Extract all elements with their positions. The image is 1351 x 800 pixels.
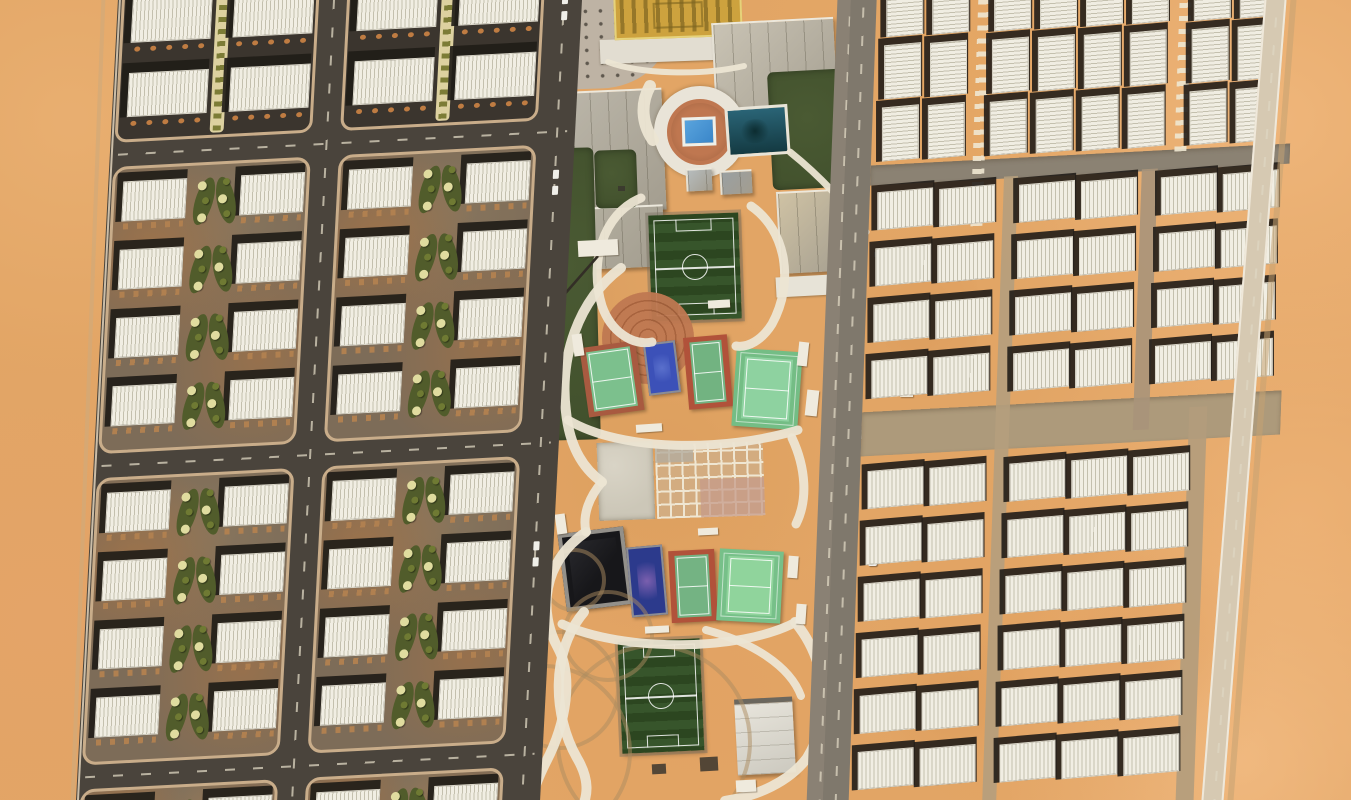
housing-block: [871, 356, 927, 399]
housing-block: [884, 42, 921, 99]
entry-tree: [134, 46, 140, 51]
bench-slab: [787, 556, 799, 579]
entry-tree: [252, 40, 258, 45]
housing-block: [1132, 0, 1169, 24]
housing-block: [1161, 172, 1217, 215]
housing-strip: [432, 783, 498, 800]
housing-strip: [105, 489, 171, 533]
housing-strip: [331, 478, 397, 522]
housing-strip: [343, 235, 409, 279]
housing-block: [922, 688, 978, 731]
tree-dot: [419, 270, 428, 280]
housing-block: [860, 691, 916, 734]
entry-tree: [392, 33, 398, 38]
housing-block: [1129, 565, 1185, 608]
tree-dot: [173, 661, 182, 671]
entry-tree: [296, 112, 302, 117]
housing-block: [935, 296, 991, 339]
entry-tree: [284, 39, 290, 44]
housing-block: [1071, 456, 1127, 499]
housing-strip: [236, 240, 302, 284]
housing-block: [1003, 627, 1059, 670]
housing-strip: [465, 160, 531, 204]
entry-tree: [510, 27, 516, 32]
housing-block: [920, 744, 976, 787]
housing-strip: [111, 383, 177, 427]
housing-block: [858, 747, 914, 790]
entry-tree: [268, 39, 274, 44]
entry-tree: [146, 120, 152, 125]
housing-strip: [219, 551, 285, 595]
housing-strip: [458, 297, 524, 341]
housing-block: [1189, 88, 1226, 145]
housing-block: [1128, 91, 1165, 148]
housing-strip: [320, 682, 386, 726]
entry-tree: [194, 117, 200, 122]
parked-car: [532, 557, 538, 566]
housing-strip: [127, 69, 209, 117]
court-blue-south: [626, 545, 668, 618]
housing-block: [992, 36, 1029, 93]
housing-strip: [461, 228, 527, 272]
housing-block: [886, 0, 923, 37]
entry-tree: [376, 34, 382, 39]
residential-zone-west: [74, 0, 584, 800]
housing-block: [868, 466, 924, 509]
entry-tree: [280, 113, 286, 118]
entry-tree: [424, 31, 430, 36]
housing-block: [930, 40, 967, 97]
courtyard: [182, 376, 227, 436]
gold-detail-2: [653, 1, 704, 29]
field-box-bottom: [646, 734, 679, 747]
housing-block: [1084, 32, 1121, 89]
superblock: [307, 456, 520, 754]
entry-tree: [388, 107, 394, 112]
pool-small: [682, 116, 717, 146]
entry-tree: [526, 26, 532, 31]
housing-strip: [131, 0, 213, 43]
housing-block: [1067, 568, 1123, 611]
debris: [700, 757, 719, 772]
housing-block: [1007, 515, 1063, 558]
entry-tree: [372, 108, 378, 113]
tree-dot: [412, 406, 421, 416]
housing-strip: [454, 52, 536, 100]
entry-tree: [182, 44, 188, 49]
courtyard: [165, 688, 210, 748]
housing-block: [928, 102, 965, 159]
tree-dot: [177, 593, 186, 603]
superblock: [98, 157, 311, 455]
housing-strip: [239, 172, 305, 216]
entry-tree: [130, 121, 136, 126]
entry-tree: [420, 106, 426, 111]
entry-tree: [404, 106, 410, 111]
housing-strip: [445, 540, 511, 584]
entry-tree: [198, 43, 204, 48]
housing-block: [937, 240, 993, 283]
housing-strip: [340, 303, 406, 347]
housing-strip: [352, 57, 434, 105]
entry-tree: [232, 115, 238, 120]
paving-gray-patch: [655, 444, 694, 463]
courtyard: [391, 676, 436, 736]
entry-tree: [236, 41, 242, 46]
housing-block: [1019, 180, 1075, 223]
entry-tree: [462, 29, 468, 34]
housing-strip: [101, 558, 167, 602]
housing-strip: [448, 471, 514, 515]
basketball-court-south: [716, 548, 784, 623]
courtyard: [411, 296, 456, 356]
bench-slab: [708, 299, 730, 308]
courtyard: [176, 483, 221, 543]
entry-tree: [356, 109, 362, 114]
housing-block: [1086, 0, 1123, 27]
housing-block: [1130, 29, 1167, 86]
courtyard: [189, 240, 234, 300]
housing-strip: [232, 0, 314, 38]
housing-block: [1040, 0, 1077, 29]
roof-seams: [721, 171, 752, 195]
gym-building: [734, 697, 796, 776]
housing-block: [1005, 571, 1061, 614]
tree-dot: [190, 350, 199, 360]
parked-car: [533, 541, 539, 550]
bench-slab: [698, 527, 718, 535]
courtyard: [192, 171, 237, 231]
tree-dot: [406, 513, 415, 523]
housing-strip: [323, 614, 389, 658]
court-outline: [720, 553, 779, 620]
housing-strip: [212, 688, 278, 732]
housing-block: [1194, 0, 1231, 21]
roof-seams: [734, 702, 796, 776]
tree-dot: [170, 729, 179, 739]
housing-block: [1192, 26, 1229, 83]
housing-block: [1001, 684, 1057, 727]
housing-block: [933, 353, 989, 396]
entry-tree: [474, 103, 480, 108]
parked-car: [552, 186, 558, 195]
superblock: [302, 767, 504, 800]
superblock: [324, 145, 537, 443]
housing-block: [1061, 736, 1117, 779]
entry-tree: [494, 28, 500, 33]
housing-block: [1069, 512, 1125, 555]
housing-block: [1079, 233, 1135, 276]
housing-strip: [232, 308, 298, 352]
housing-block: [1159, 229, 1215, 272]
entry-tree: [506, 101, 512, 106]
court-surface: [586, 346, 638, 412]
tree-dot: [396, 717, 405, 727]
court-outline: [736, 352, 799, 426]
entry-tree: [490, 102, 496, 107]
field-box-top: [642, 644, 675, 657]
housing-block: [925, 575, 981, 618]
entry-tree: [248, 115, 254, 120]
courtyard: [385, 782, 430, 800]
housing-block: [1063, 680, 1119, 723]
court-surface: [674, 554, 711, 618]
lawn-west-small: [594, 149, 638, 208]
court-sheen: [567, 537, 623, 601]
superblock: [114, 0, 320, 143]
entry-tree: [408, 32, 414, 37]
housing-block: [1131, 508, 1187, 551]
courtyard: [185, 308, 230, 368]
housing-block: [927, 519, 983, 562]
courtyard: [402, 471, 447, 531]
housing-block: [1155, 341, 1211, 384]
housing-block: [929, 463, 985, 506]
housing-block: [866, 522, 922, 565]
entry-tree: [300, 38, 306, 43]
paving-slab: [597, 441, 656, 521]
housing-block: [1017, 236, 1073, 279]
housing-strip: [228, 377, 294, 421]
housing-block: [924, 632, 980, 675]
courtyard: [173, 551, 218, 611]
housing-block: [1123, 733, 1179, 776]
court-center: [636, 559, 658, 603]
roof-seams: [688, 169, 713, 191]
parked-car: [562, 0, 568, 4]
courtyard: [395, 607, 440, 667]
housing-block: [1009, 459, 1065, 502]
slab-east: [776, 275, 833, 298]
housing-strip: [118, 246, 184, 290]
housing-strip: [438, 676, 504, 720]
housing-block: [877, 187, 933, 230]
housing-strip: [229, 63, 311, 111]
paving-grid: [655, 441, 766, 519]
satellite-image: [0, 0, 1351, 800]
housing-strip: [458, 0, 540, 26]
housing-block: [1013, 348, 1069, 391]
court-center: [652, 352, 671, 384]
bench-slab: [795, 604, 806, 625]
tree-dot: [391, 792, 400, 800]
housing-block: [1133, 452, 1189, 495]
bench-slab: [578, 239, 619, 257]
courtyard: [398, 539, 443, 599]
entry-tree: [360, 35, 366, 40]
tennis-court-north: [683, 334, 733, 410]
courtyard: [407, 364, 452, 424]
housing-strip: [347, 166, 413, 210]
field-box-top: [675, 218, 711, 231]
entry-tree: [458, 104, 464, 109]
paving-pink-patch: [700, 477, 765, 517]
debris: [652, 764, 667, 775]
housing-block: [939, 184, 995, 227]
court-blue-north: [643, 340, 681, 396]
entry-tree: [478, 28, 484, 33]
tennis-court-south: [668, 549, 718, 623]
tree-dot: [197, 213, 206, 223]
entry-tree: [162, 119, 168, 124]
entry-tree: [522, 100, 528, 105]
housing-block: [1125, 677, 1181, 720]
housing-block: [1000, 740, 1056, 783]
housing-strip: [327, 546, 393, 590]
entry-tree: [150, 46, 156, 51]
housing-block: [1065, 624, 1121, 667]
pool-shadow: [738, 118, 771, 144]
tree-dot: [403, 581, 412, 591]
superblock: [82, 468, 295, 766]
tree-dot: [193, 281, 202, 291]
bench-slab: [645, 625, 669, 633]
tree-dot: [399, 649, 408, 659]
soccer-field-south: [618, 638, 705, 753]
housing-strip: [121, 178, 187, 222]
parked-car: [553, 170, 559, 179]
housing-block: [862, 635, 918, 678]
housing-block: [1015, 292, 1071, 335]
housing-strip: [223, 483, 289, 527]
housing-strip: [94, 694, 160, 738]
tree-dot: [423, 201, 432, 211]
superblock: [340, 0, 546, 131]
tree-dot: [186, 418, 195, 428]
housing-strip: [114, 315, 180, 359]
housing-strip: [336, 371, 402, 415]
housing-strip: [356, 0, 438, 31]
debris: [618, 186, 625, 191]
housing-block: [873, 300, 929, 343]
housing-block: [864, 579, 920, 622]
courtyard: [169, 619, 214, 679]
bench-slab: [736, 779, 757, 792]
housing-strip: [441, 608, 507, 652]
housing-block: [932, 0, 969, 35]
pool-service-1: [685, 167, 712, 191]
court-green-north: [579, 340, 644, 417]
courtyard: [418, 160, 463, 220]
housing-block: [990, 99, 1027, 156]
housing-block: [1082, 94, 1119, 151]
basketball-court-north: [731, 348, 802, 430]
housing-block: [1077, 289, 1133, 332]
housing-block: [994, 0, 1031, 32]
entry-tree: [166, 45, 172, 50]
parked-car: [561, 11, 567, 20]
housing-block: [1081, 177, 1137, 220]
pool-service-2: [719, 169, 752, 195]
housing-strip: [216, 620, 282, 664]
entry-tree: [264, 114, 270, 119]
superblock: [76, 779, 278, 800]
housing-block: [1075, 345, 1131, 388]
housing-block: [1036, 96, 1073, 153]
paving-under-construction: [597, 437, 768, 527]
tree-dot: [415, 338, 424, 348]
housing-strip: [454, 365, 520, 409]
court-surface: [689, 340, 726, 405]
tree-dot: [181, 524, 190, 534]
courtyard: [415, 228, 460, 288]
housing-block: [1127, 621, 1183, 664]
entry-tree: [178, 118, 184, 123]
housing-block: [875, 244, 931, 287]
pool-large: [724, 104, 790, 158]
court-dark-south: [557, 526, 632, 611]
housing-strip: [98, 626, 164, 670]
housing-block: [882, 104, 919, 161]
housing-block: [1038, 34, 1075, 91]
housing-block: [1157, 285, 1213, 328]
bench-slab: [797, 342, 809, 367]
